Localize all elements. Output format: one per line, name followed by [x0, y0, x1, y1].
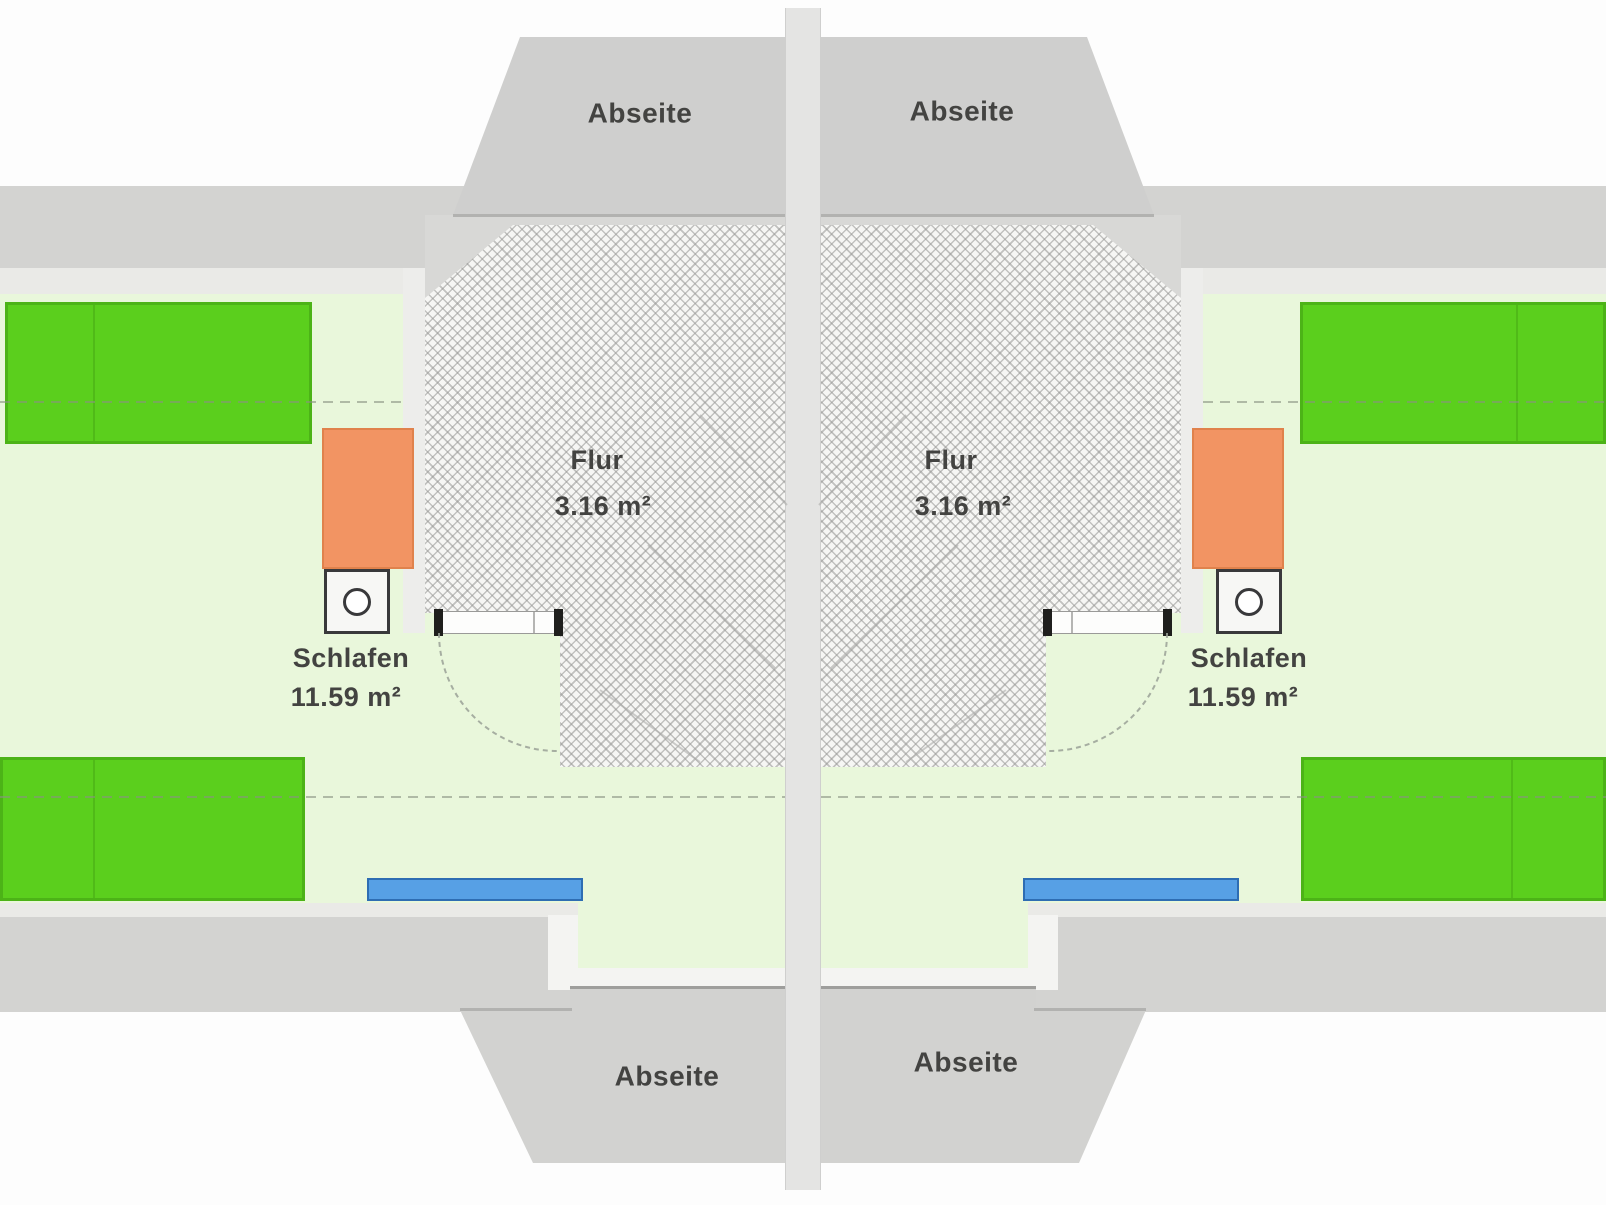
label-flur-left-area: 3.16 m²: [555, 492, 652, 522]
nightstand-left: [324, 569, 390, 634]
wardrobe-left: [322, 428, 414, 569]
nightstand-right: [1216, 569, 1282, 634]
wall-top-right: [1116, 186, 1606, 270]
dormer-bay-right-floor: [819, 903, 1028, 968]
wall-top-right-inner: [1181, 268, 1606, 294]
lamp-icon: [343, 588, 371, 616]
label-abseite-top-right: Abseite: [910, 97, 1015, 128]
abseite-bottom-left-edge: [460, 1008, 572, 1011]
door-right-jamb-a: [1043, 609, 1052, 636]
bed-pillow-divider: [1511, 760, 1513, 898]
bed-pillow-divider: [93, 760, 95, 898]
abseite-bottom-left-top-edge: [570, 986, 787, 989]
abseite-bottom-right-edge: [1034, 1008, 1146, 1011]
party-wall: [785, 8, 821, 1190]
wall-top-left: [0, 186, 490, 270]
bed-bottom-left: [0, 757, 305, 901]
door-right-jamb-b: [1163, 609, 1172, 636]
window-right: [1023, 878, 1239, 901]
label-abseite-bottom-right: Abseite: [914, 1048, 1019, 1079]
window-left: [367, 878, 583, 901]
door-left-jamb-a: [434, 609, 443, 636]
bed-pillow-divider: [1516, 305, 1518, 441]
abseite-top-right-bottom-edge: [819, 214, 1154, 217]
door-right: [1046, 611, 1169, 634]
door-right-tick: [1071, 612, 1073, 633]
label-flur-right-name: Flur: [925, 446, 978, 476]
label-flur-left-name: Flur: [571, 446, 624, 476]
bed-top-left: [5, 302, 312, 444]
wardrobe-right: [1192, 428, 1284, 569]
label-schlafen-right-area: 11.59 m²: [1188, 683, 1299, 713]
label-schlafen-left-area: 11.59 m²: [291, 683, 402, 713]
door-left-jamb-b: [554, 609, 563, 636]
door-left-tick: [533, 612, 535, 633]
lamp-icon: [1235, 588, 1263, 616]
abseite-bottom-right-top-edge: [819, 986, 1036, 989]
bed-top-right: [1300, 302, 1606, 444]
floor-plan-canvas: Abseite Abseite Flur 3.16 m² Flur 3.16 m…: [0, 0, 1606, 1205]
bed-bottom-right: [1301, 757, 1606, 901]
label-schlafen-right-name: Schlafen: [1191, 644, 1308, 674]
abseite-top-left-bottom-edge: [453, 214, 787, 217]
bed-pillow-divider: [93, 305, 95, 441]
wall-top-left-inner: [0, 268, 425, 294]
label-schlafen-left-name: Schlafen: [293, 644, 410, 674]
label-abseite-bottom-left: Abseite: [615, 1062, 720, 1093]
label-flur-right-area: 3.16 m²: [915, 492, 1012, 522]
label-abseite-top-left: Abseite: [588, 99, 693, 130]
door-left: [437, 611, 560, 634]
dormer-bay-left-floor: [578, 903, 787, 968]
